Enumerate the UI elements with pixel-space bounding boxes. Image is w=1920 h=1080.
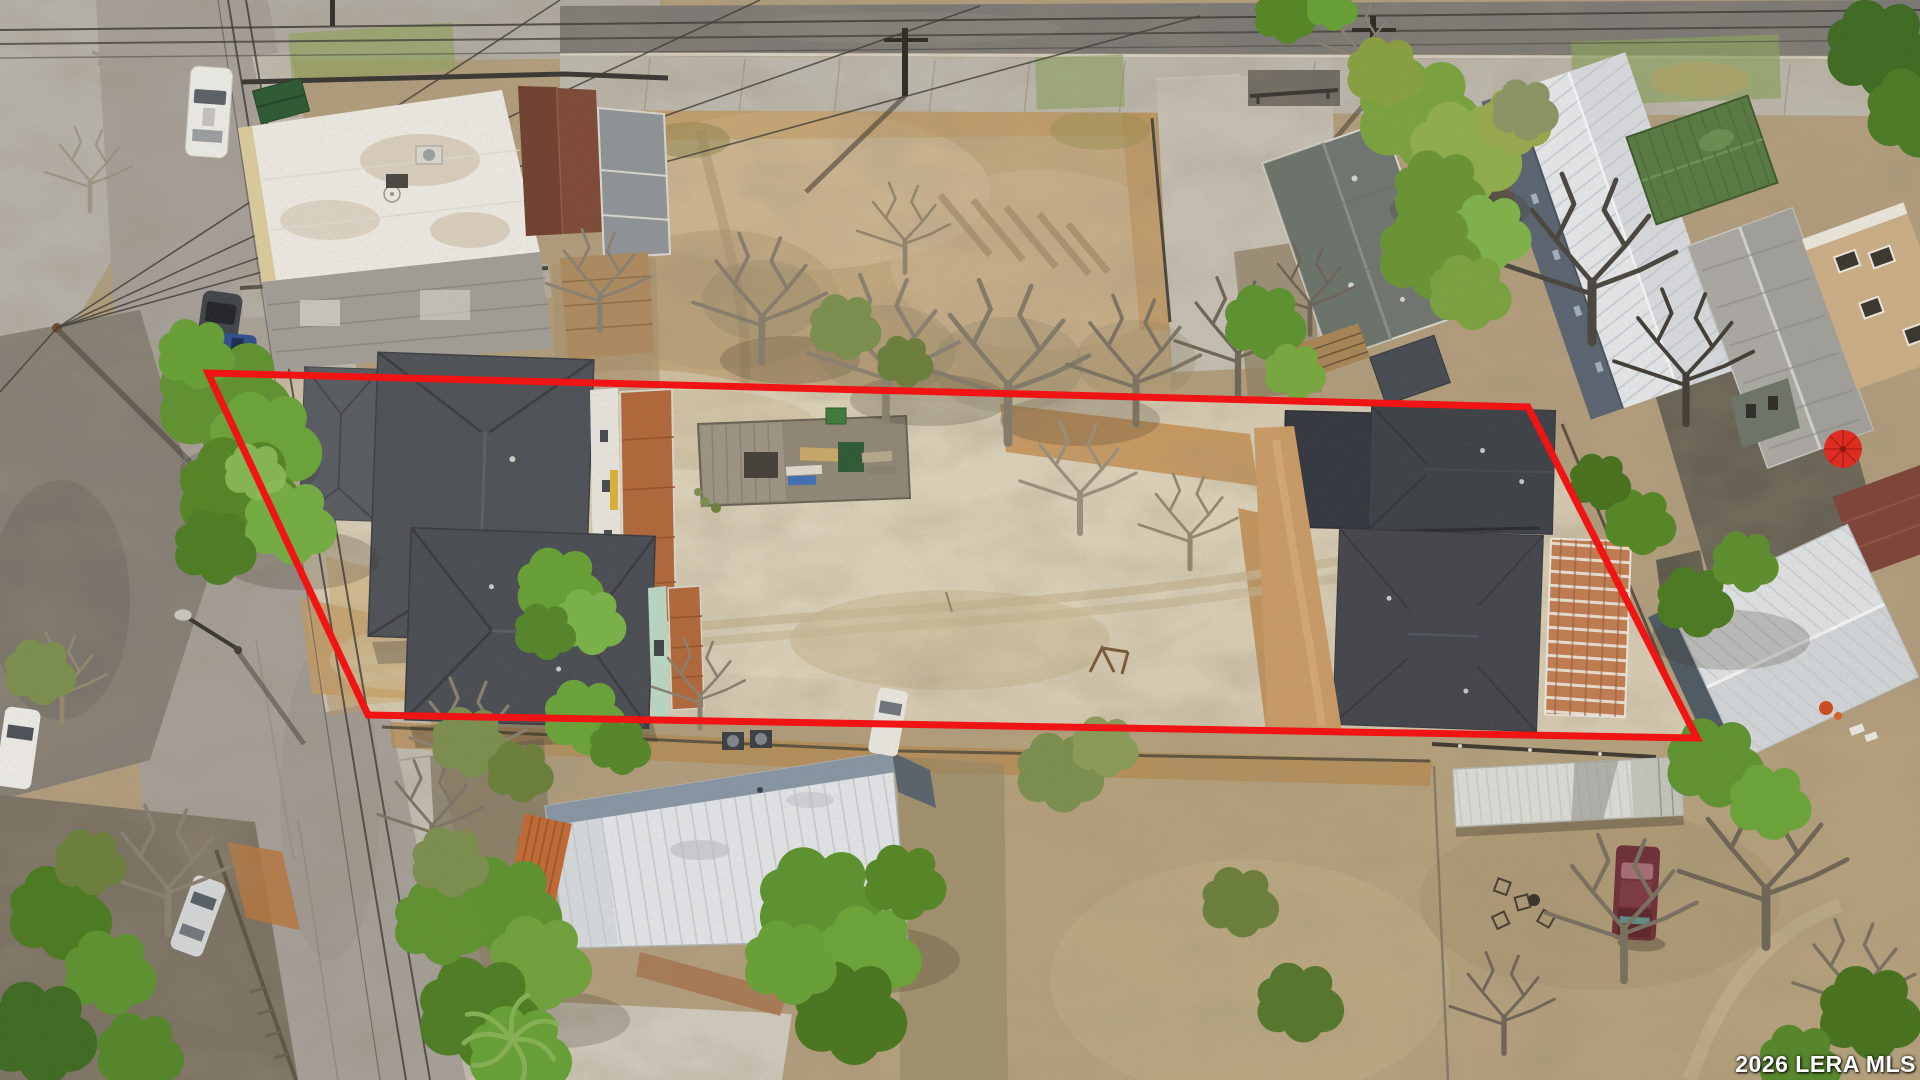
aerial-photo: 2026 LERA MLS [0,0,1920,1080]
mls-watermark: 2026 LERA MLS [1735,1051,1916,1078]
aerial-scene [0,0,1920,1080]
